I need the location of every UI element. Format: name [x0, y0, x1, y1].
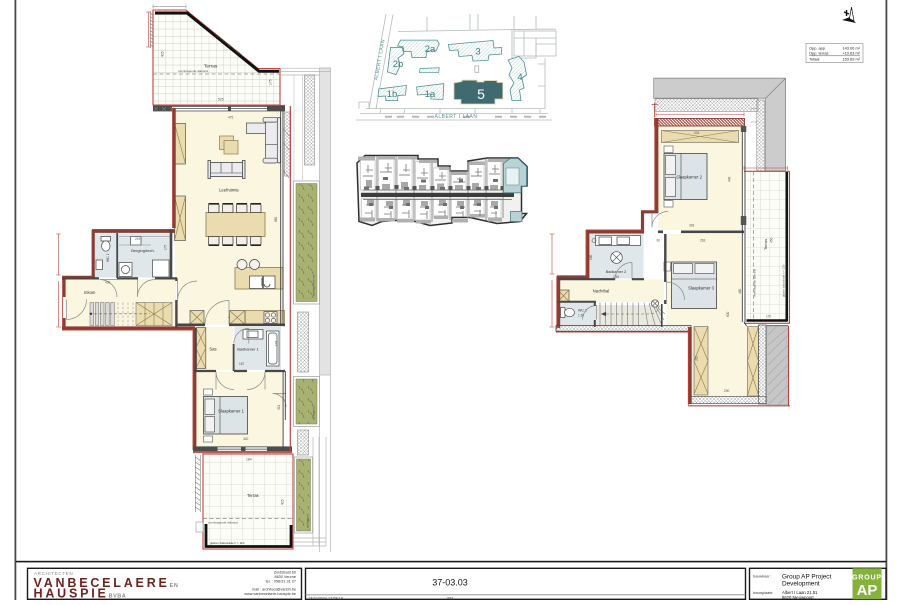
svg-text:860: 860	[274, 216, 278, 222]
svg-text:153.69 m²: 153.69 m²	[842, 57, 860, 62]
svg-text:Slaapkamer 3: Slaapkamer 3	[688, 286, 715, 291]
svg-text:133: 133	[275, 340, 279, 346]
svg-text:aanliggend: aanliggend	[306, 514, 310, 528]
svg-text:310: 310	[695, 355, 699, 361]
svg-text:overkragende dakrand: overkragende dakrand	[753, 269, 757, 297]
svg-text:456: 456	[770, 237, 774, 243]
svg-text:Zuidstraat 60: Zuidstraat 60	[274, 571, 296, 575]
svg-text:Badkamer 1: Badkamer 1	[237, 347, 259, 352]
svg-text:2b: 2b	[393, 59, 404, 70]
svg-text:37-03.03: 37-03.03	[432, 578, 468, 588]
svg-text:187: 187	[239, 362, 245, 366]
svg-text:5: 5	[477, 86, 485, 102]
svg-text:Berging/tech.: Berging/tech.	[131, 248, 155, 253]
svg-text:180: 180	[589, 254, 593, 260]
svg-text:bouwheer:: bouwheer:	[753, 575, 771, 579]
svg-text:90: 90	[657, 239, 661, 243]
svg-text:Terras: Terras	[763, 239, 768, 250]
svg-text:393: 393	[689, 224, 695, 228]
svg-text:www.vanbecelaere-hauspie.be: www.vanbecelaere-hauspie.be	[244, 592, 296, 596]
svg-text:1b: 1b	[387, 89, 398, 100]
svg-text:Slaapkamer 2: Slaapkamer 2	[676, 175, 703, 180]
svg-text:glazen balustrade h = 110: glazen balustrade h = 110	[210, 541, 245, 545]
svg-text:Nachthal: Nachthal	[593, 289, 610, 294]
svg-text:4: 4	[517, 72, 522, 83]
svg-text:Opp. terras: Opp. terras	[809, 51, 829, 56]
svg-text:8630 Veurne: 8630 Veurne	[274, 575, 296, 579]
svg-text:460: 460	[738, 288, 742, 294]
svg-text:3: 3	[475, 47, 480, 58]
svg-text:Slaapkamer 1: Slaapkamer 1	[218, 409, 245, 414]
svg-text:525: 525	[218, 98, 224, 102]
svg-text:aanliggend: aanliggend	[312, 406, 316, 420]
svg-text:263: 263	[700, 239, 706, 243]
svg-text:600: 600	[726, 311, 730, 317]
svg-text:Terras: Terras	[247, 493, 259, 498]
svg-text:WC 1: WC 1	[106, 253, 110, 262]
svg-text:475: 475	[228, 116, 234, 120]
svg-text:aanliggend terras: aanliggend terras	[312, 274, 316, 296]
svg-text:+10.63 m²: +10.63 m²	[842, 51, 860, 56]
svg-text:1a: 1a	[425, 89, 436, 100]
svg-text:mail : architect@vanbh.be: mail : architect@vanbh.be	[252, 588, 296, 592]
svg-text:203: 203	[694, 131, 700, 135]
svg-text:V02: V02	[447, 597, 454, 601]
svg-text:425: 425	[161, 51, 165, 57]
svg-text:Group AP Project: Group AP Project	[782, 574, 831, 581]
svg-text:8620 Nieuwpoort: 8620 Nieuwpoort	[782, 595, 814, 600]
svg-text:425: 425	[281, 499, 285, 505]
svg-text:overkragende dakrand: overkragende dakrand	[208, 521, 238, 525]
svg-text:ALBERT I LAAN: ALBERT I LAAN	[435, 114, 478, 120]
svg-text:Sas: Sas	[209, 347, 216, 352]
svg-text:184: 184	[246, 458, 252, 462]
svg-text:175: 175	[164, 244, 168, 250]
svg-text:Totaal: Totaal	[809, 57, 820, 62]
svg-text:219: 219	[135, 237, 141, 241]
svg-text:2a: 2a	[425, 44, 436, 55]
svg-text:340: 340	[243, 437, 249, 441]
svg-text:glazen balustrade h = 120: glazen balustrade h = 120	[782, 264, 786, 297]
svg-text:175: 175	[269, 79, 273, 85]
svg-text:AP: AP	[857, 582, 878, 599]
svg-text:13/10/2024 12:58:19: 13/10/2024 12:58:19	[308, 596, 343, 600]
svg-text:GROUP: GROUP	[852, 575, 882, 582]
svg-text:170: 170	[766, 315, 772, 319]
svg-text:Inkom: Inkom	[84, 290, 96, 295]
svg-text:overkragende dakrand: overkragende dakrand	[178, 69, 208, 73]
svg-text:Leefruimte: Leefruimte	[219, 188, 239, 193]
svg-text:bouwplaats:: bouwplaats:	[753, 591, 773, 595]
svg-text:Terras: Terras	[204, 64, 218, 70]
svg-text:Development: Development	[782, 581, 820, 588]
svg-text:tel. : 058/31 31 27: tel. : 058/31 31 27	[266, 580, 296, 584]
svg-text:290: 290	[724, 389, 730, 393]
svg-text:448: 448	[728, 176, 732, 182]
svg-text:321: 321	[277, 404, 281, 410]
